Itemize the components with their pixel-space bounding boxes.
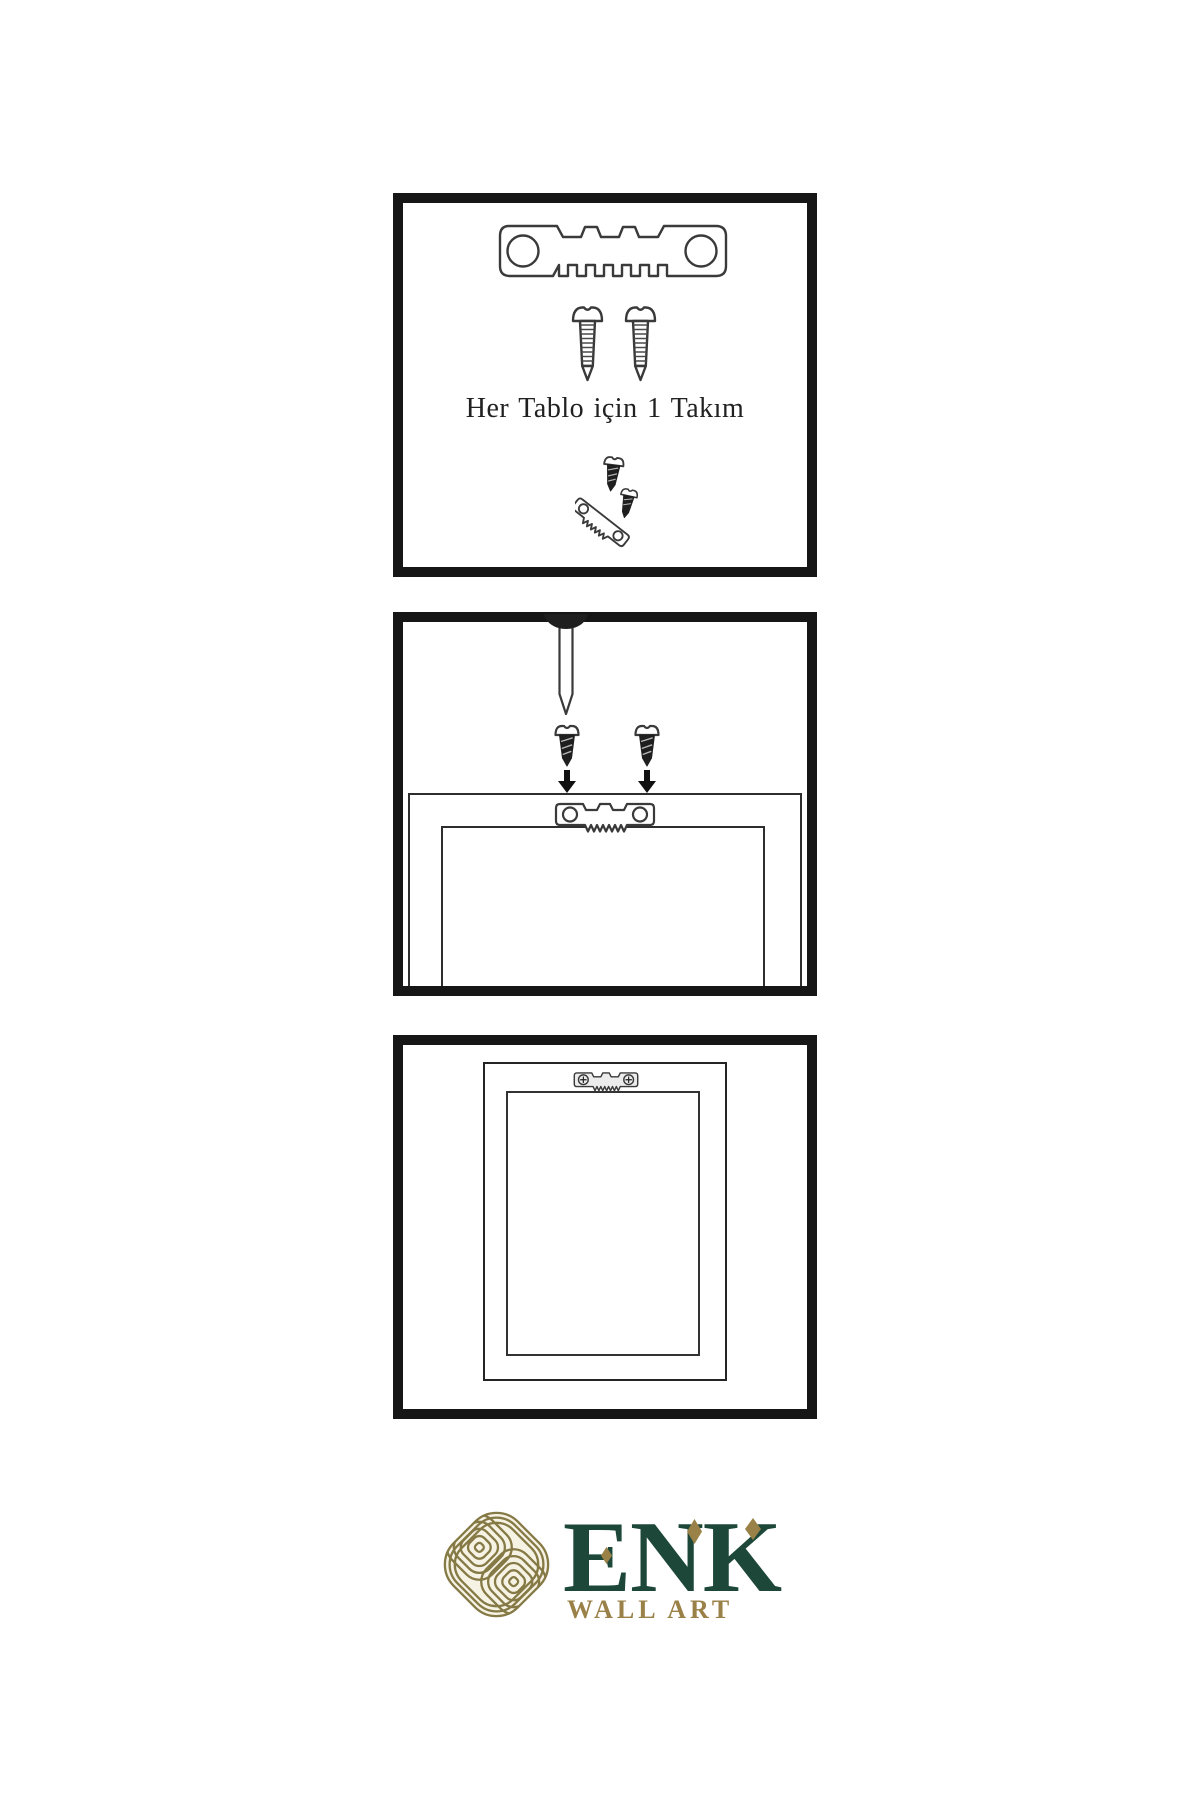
instruction-sheet: Her Tablo için 1 Takım [0,0,1200,1800]
brand-text-block: ENK WALL ART [563,1506,783,1626]
knot-emblem-icon [434,1502,559,1627]
brand-logo: ENK WALL ART [0,0,1200,1800]
brand-tagline: WALL ART [567,1595,733,1625]
